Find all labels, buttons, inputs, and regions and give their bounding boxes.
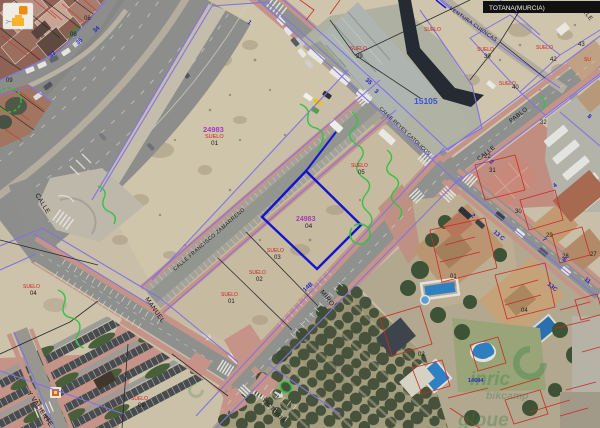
svg-text:SU: SU: [584, 57, 591, 63]
svg-text:SUELO: SUELO: [536, 45, 553, 51]
svg-text:02: 02: [418, 352, 425, 358]
svg-text:TOTANA(MURCIA): TOTANA(MURCIA): [489, 5, 545, 12]
svg-text:15105: 15105: [414, 96, 438, 106]
svg-text:02: 02: [256, 277, 263, 283]
svg-text:SUELO: SUELO: [477, 47, 494, 53]
svg-text:40: 40: [512, 85, 519, 91]
svg-text:09: 09: [6, 78, 13, 84]
svg-text:SUELO: SUELO: [424, 27, 441, 33]
svg-text:08: 08: [70, 32, 77, 38]
svg-text:27: 27: [590, 252, 597, 258]
svg-text:bikcamp: bikcamp: [486, 390, 529, 402]
svg-text:06: 06: [84, 16, 91, 22]
svg-text:SUELO: SUELO: [351, 163, 368, 169]
svg-text:SUELO: SUELO: [131, 396, 148, 402]
svg-text:30: 30: [515, 209, 522, 215]
svg-text:24983: 24983: [296, 216, 316, 223]
svg-text:04: 04: [30, 291, 37, 297]
svg-text:39: 39: [484, 54, 491, 60]
svg-text:04: 04: [305, 223, 313, 230]
svg-text:42: 42: [550, 57, 557, 63]
svg-text:09: 09: [138, 403, 145, 409]
svg-text:05: 05: [358, 170, 365, 176]
svg-text:32: 32: [540, 120, 547, 126]
svg-text:01: 01: [211, 140, 219, 147]
svg-text:03: 03: [274, 255, 281, 261]
svg-text:01: 01: [450, 274, 457, 280]
svg-text:01: 01: [228, 299, 235, 305]
svg-text:24983: 24983: [203, 125, 224, 134]
svg-text:gloue: gloue: [457, 410, 509, 428]
svg-text:SUELO: SUELO: [350, 46, 367, 52]
svg-text:SUELO: SUELO: [267, 248, 284, 254]
svg-text:31: 31: [489, 168, 496, 174]
svg-text:43: 43: [578, 42, 585, 48]
svg-text:SUELO: SUELO: [221, 292, 238, 298]
svg-text:39: 39: [356, 54, 363, 60]
svg-text:04: 04: [521, 308, 528, 314]
svg-text:inric: inric: [470, 369, 511, 390]
svg-text:SUELO: SUELO: [23, 284, 40, 290]
svg-text:SUELO: SUELO: [249, 270, 266, 276]
